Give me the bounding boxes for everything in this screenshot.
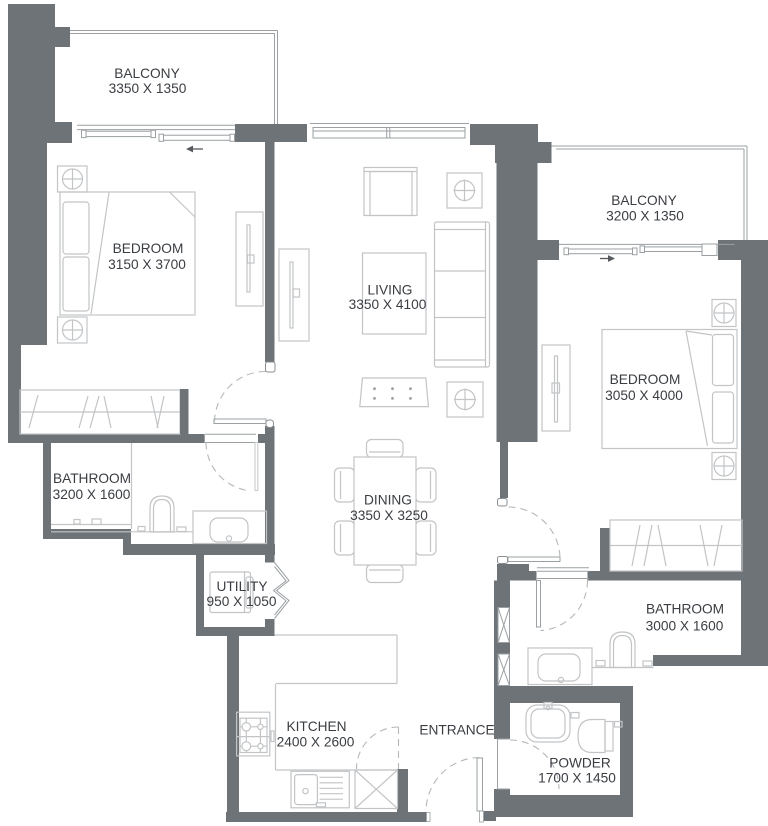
- svg-text:3200 X 1350: 3200 X 1350: [606, 209, 684, 224]
- svg-text:BALCONY: BALCONY: [114, 66, 179, 81]
- svg-text:BATHROOM: BATHROOM: [646, 602, 724, 617]
- svg-text:BEDROOM: BEDROOM: [610, 372, 681, 387]
- svg-text:DINING: DINING: [364, 493, 412, 508]
- svg-text:1700 X 1450: 1700 X 1450: [538, 771, 616, 786]
- svg-text:ENTRANCE: ENTRANCE: [419, 723, 494, 738]
- svg-text:3200 X 1600: 3200 X 1600: [53, 487, 131, 502]
- svg-text:LIVING: LIVING: [368, 283, 413, 298]
- svg-text:3350 X 1350: 3350 X 1350: [109, 81, 187, 96]
- svg-text:3000 X 1600: 3000 X 1600: [646, 619, 724, 634]
- svg-text:3150 X 3700: 3150 X 3700: [108, 257, 186, 272]
- svg-text:950 X 1050: 950 X 1050: [206, 594, 276, 609]
- svg-text:POWDER: POWDER: [549, 756, 611, 771]
- svg-text:2400 X 2600: 2400 X 2600: [277, 735, 355, 750]
- svg-text:BALCONY: BALCONY: [611, 193, 676, 208]
- svg-text:BEDROOM: BEDROOM: [113, 241, 184, 256]
- svg-text:3350 X 3250: 3350 X 3250: [350, 508, 428, 523]
- svg-text:3050 X 4000: 3050 X 4000: [605, 388, 683, 403]
- svg-text:UTILITY: UTILITY: [217, 579, 268, 594]
- svg-text:BATHROOM: BATHROOM: [53, 471, 131, 486]
- svg-text:KITCHEN: KITCHEN: [286, 719, 346, 734]
- svg-text:3350 X 4100: 3350 X 4100: [349, 297, 427, 312]
